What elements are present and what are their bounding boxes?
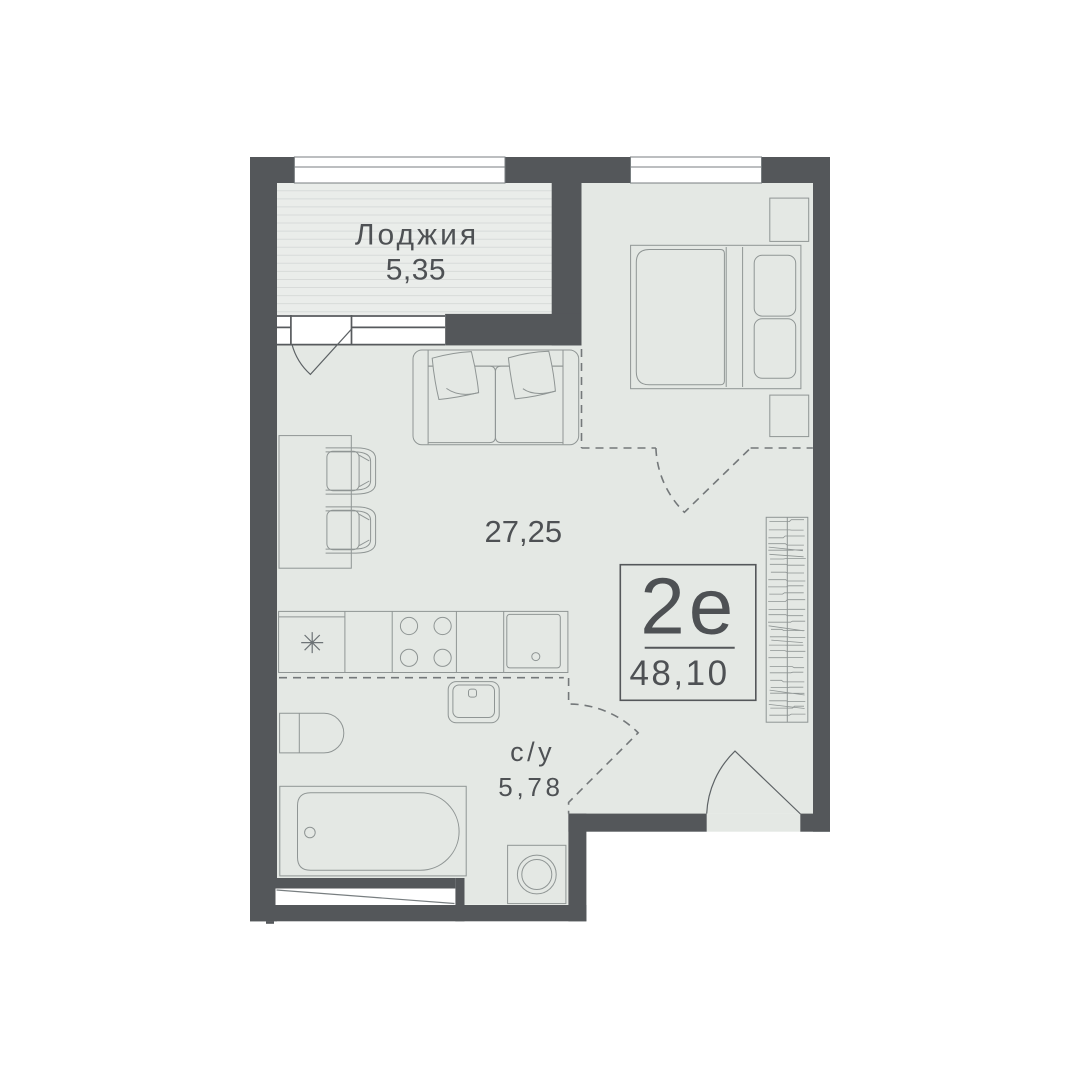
svg-text:с/у: с/у <box>510 737 555 767</box>
svg-text:48,10: 48,10 <box>629 654 729 693</box>
svg-text:Лоджия: Лоджия <box>355 218 479 251</box>
svg-text:5,35: 5,35 <box>386 253 446 286</box>
svg-text:27,25: 27,25 <box>485 514 563 549</box>
svg-text:2е: 2е <box>640 561 737 650</box>
svg-text:5,78: 5,78 <box>498 772 563 802</box>
